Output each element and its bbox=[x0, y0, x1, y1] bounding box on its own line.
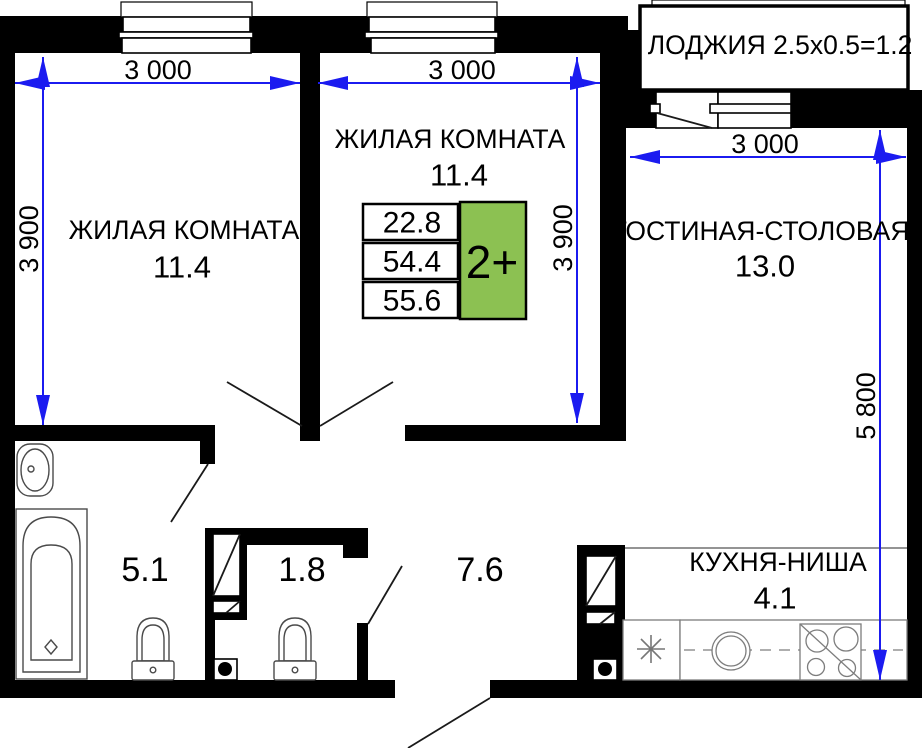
wc-riser-dot bbox=[218, 662, 232, 676]
dim-text: 3 900 bbox=[14, 205, 44, 273]
loggia: ЛОДЖИЯ 2.5х0.5=1.2 bbox=[640, 0, 912, 90]
wall-top bbox=[0, 16, 628, 53]
dim-text: 5 800 bbox=[851, 372, 881, 440]
living-dining-area: 13.0 bbox=[735, 249, 795, 284]
wall-bedroom-living bbox=[600, 53, 626, 441]
dim-bedroom-left-width: 3 000 bbox=[15, 55, 300, 90]
kitchen-sink-icon bbox=[712, 632, 750, 670]
bedroom-left-area: 11.4 bbox=[153, 250, 211, 285]
arrow-left-icon bbox=[630, 150, 660, 164]
wc-area: 1.8 bbox=[278, 551, 325, 589]
wc-vent-small-box bbox=[213, 601, 240, 613]
wall-wc-right-lower bbox=[357, 623, 368, 680]
room-labels: ЖИЛАЯ КОМНАТА 11.4 ЖИЛАЯ КОМНАТА 11.4 ГО… bbox=[69, 124, 910, 616]
balcony-door-window bbox=[650, 92, 791, 128]
table-value: 22.8 bbox=[383, 207, 441, 240]
arrow-up-icon bbox=[36, 57, 50, 87]
wall-band-bathroom-top bbox=[15, 425, 207, 441]
kitchen-riser-dot bbox=[598, 662, 612, 676]
dim-living-height: 5 800 bbox=[851, 130, 887, 680]
door-bathroom bbox=[171, 464, 208, 522]
bedroom-middle-name: ЖИЛАЯ КОМНАТА bbox=[335, 124, 566, 154]
wall-bottom-right bbox=[490, 680, 922, 698]
arrow-up-icon bbox=[873, 130, 887, 160]
dim-living-width: 3 000 bbox=[630, 129, 906, 164]
dim-text: 3 900 bbox=[548, 204, 578, 272]
dim-text: 3 000 bbox=[428, 55, 496, 85]
wall-bedroom-divider bbox=[300, 53, 320, 441]
arrow-left-icon bbox=[318, 76, 348, 90]
loggia-label: ЛОДЖИЯ 2.5х0.5=1.2 bbox=[648, 30, 913, 60]
wall-wc-door-jamb bbox=[343, 545, 368, 558]
sink-icon bbox=[17, 444, 53, 496]
door-wc bbox=[368, 566, 402, 624]
arrow-right-icon bbox=[270, 76, 300, 90]
dim-bedroom-middle-width: 3 000 bbox=[318, 55, 600, 90]
table-value: 55.6 bbox=[383, 285, 441, 318]
window-bedroom-left bbox=[119, 2, 253, 53]
balcony-door bbox=[656, 92, 718, 128]
stove-icon bbox=[800, 624, 861, 680]
bathtub-icon bbox=[16, 509, 87, 679]
badge-text: 2+ bbox=[466, 236, 518, 288]
dim-text: 3 000 bbox=[731, 129, 799, 159]
living-dining-name: ГОСТИНАЯ-СТОЛОВАЯ bbox=[613, 216, 910, 246]
door-bedroom-left bbox=[227, 382, 302, 426]
wall-right bbox=[907, 95, 922, 698]
door-entrance bbox=[408, 698, 490, 748]
kitchen-vent-small-box bbox=[586, 612, 615, 624]
arrow-down-icon bbox=[570, 393, 584, 423]
kitchen-niche-name: КУХНЯ-НИША bbox=[689, 547, 867, 577]
wall-left bbox=[0, 16, 15, 698]
bedroom-middle-area: 11.4 bbox=[430, 158, 488, 193]
table-value: 54.4 bbox=[383, 246, 441, 279]
dim-bedroom-middle-height: 3 900 bbox=[548, 57, 584, 423]
fridge-icon bbox=[637, 635, 665, 663]
wall-band-hall-top bbox=[405, 425, 626, 441]
dim-bedroom-left-height: 3 900 bbox=[14, 57, 50, 425]
info-table: 22.8 54.4 55.6 2+ bbox=[363, 202, 526, 319]
wall-bottom-left bbox=[0, 680, 395, 698]
wall-balcony-right bbox=[791, 90, 922, 128]
dim-text: 3 000 bbox=[124, 55, 192, 85]
window-bedroom-middle bbox=[365, 2, 498, 53]
arrow-down-icon bbox=[36, 395, 50, 425]
floor-plan-page: ЛОДЖИЯ 2.5х0.5=1.2 bbox=[0, 0, 922, 748]
door-bedroom-middle bbox=[320, 382, 393, 426]
toilet-icon bbox=[274, 618, 316, 680]
balcony-window-mullion bbox=[710, 104, 791, 113]
bathroom-area: 5.1 bbox=[121, 551, 168, 589]
wall-bathroom-door-jamb bbox=[200, 425, 215, 464]
toilet-icon bbox=[132, 618, 174, 680]
bedroom-left-name: ЖИЛАЯ КОМНАТА bbox=[69, 215, 300, 245]
hallway-area: 7.6 bbox=[456, 551, 503, 589]
kitchen-niche-area: 4.1 bbox=[753, 581, 796, 616]
floor-plan: ЛОДЖИЯ 2.5х0.5=1.2 bbox=[0, 0, 922, 748]
balcony-door-hinge bbox=[650, 104, 660, 113]
arrow-up-icon bbox=[570, 57, 584, 87]
